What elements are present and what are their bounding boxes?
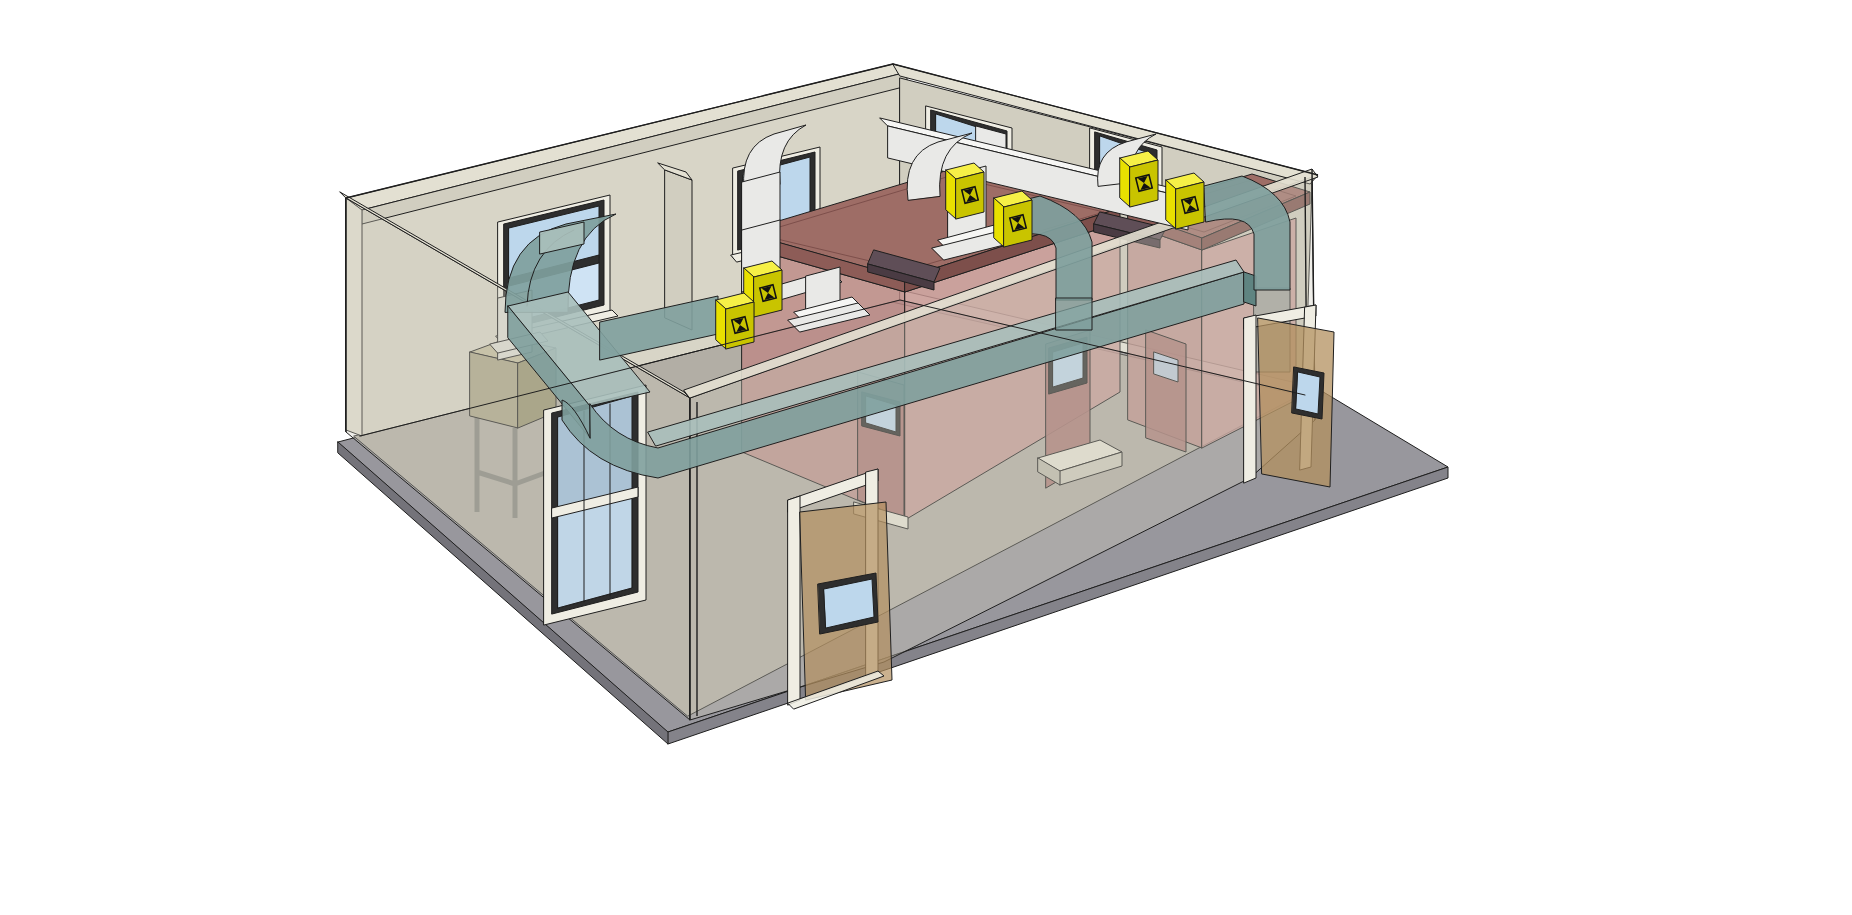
- damper-3: [946, 163, 984, 219]
- damper-3-part: [946, 170, 956, 219]
- damper-6: [1166, 173, 1204, 229]
- damper-5-part: [1120, 158, 1130, 207]
- right-door-vision-glass: [1296, 372, 1320, 414]
- damper-6-part: [1166, 180, 1176, 229]
- extract-mid-drop: [1056, 298, 1092, 330]
- front-door-jamb-left: [788, 496, 800, 705]
- model-viewport[interactable]: 3D perspective model of a single-storey …: [0, 0, 1852, 915]
- damper-4: [994, 191, 1032, 247]
- damper-2: [716, 293, 754, 349]
- damper-2-part: [716, 300, 726, 349]
- damper-5: [1120, 151, 1158, 207]
- damper-4-part: [994, 198, 1004, 247]
- right-door-jamb-left: [1244, 315, 1256, 483]
